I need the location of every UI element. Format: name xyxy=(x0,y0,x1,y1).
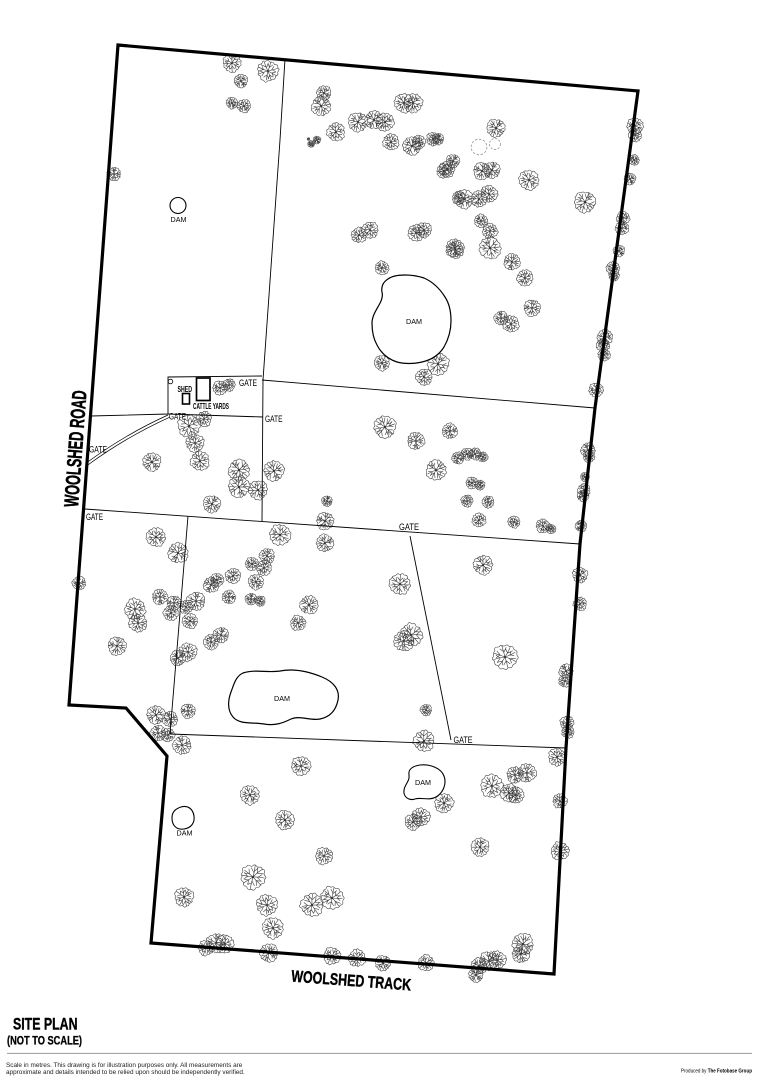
svg-text:GATE: GATE xyxy=(169,412,186,422)
svg-text:Produced by The Fotobase Group: Produced by The Fotobase Group xyxy=(681,1069,752,1075)
svg-text:DAM: DAM xyxy=(274,694,290,703)
svg-text:DAM: DAM xyxy=(406,317,422,326)
svg-text:(NOT TO SCALE): (NOT TO SCALE) xyxy=(7,1034,82,1048)
svg-text:CATTLE YARDS: CATTLE YARDS xyxy=(193,401,229,411)
svg-text:GATE: GATE xyxy=(454,735,473,745)
svg-text:Scale in metres. This drawing: Scale in metres. This drawing is for ill… xyxy=(6,1062,243,1069)
svg-text:GATE: GATE xyxy=(399,522,419,532)
svg-text:GATE: GATE xyxy=(86,512,103,522)
svg-text:approximate and details intend: approximate and details intended to be r… xyxy=(6,1069,245,1076)
svg-text:GATE: GATE xyxy=(239,378,257,388)
svg-text:SHED: SHED xyxy=(178,385,193,394)
svg-text:SITE PLAN: SITE PLAN xyxy=(13,1015,78,1034)
svg-text:DAM: DAM xyxy=(177,829,193,838)
svg-text:DAM: DAM xyxy=(171,215,187,224)
svg-text:GATE: GATE xyxy=(265,414,283,424)
svg-text:GATE: GATE xyxy=(89,445,107,455)
svg-text:DAM: DAM xyxy=(415,778,431,787)
